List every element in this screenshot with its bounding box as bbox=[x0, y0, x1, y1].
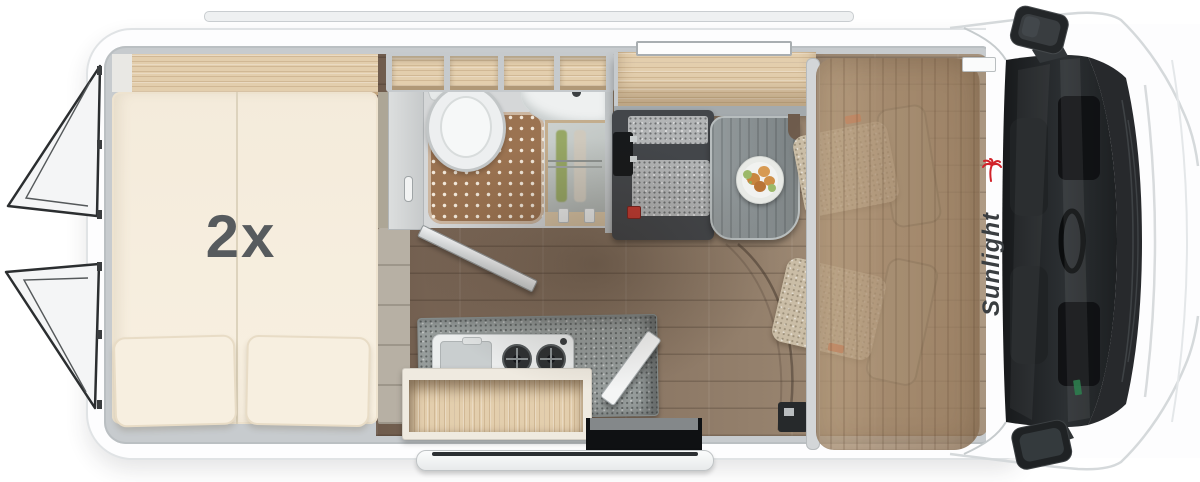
pillow-right bbox=[245, 335, 371, 428]
partition-seam bbox=[378, 92, 388, 228]
latch-detail bbox=[784, 408, 794, 416]
bed-side-cabinet bbox=[112, 54, 132, 92]
seatbelt-clip-1 bbox=[630, 136, 637, 142]
door-latch-mechanism bbox=[778, 402, 808, 432]
bench-seat-cushion bbox=[632, 160, 710, 216]
kitchen-shelf-cavity bbox=[409, 380, 583, 432]
wardrobe-sill bbox=[545, 212, 605, 226]
brand-logo-text: Sunlight bbox=[978, 184, 1006, 316]
side-window-strip bbox=[636, 41, 792, 56]
locker-cubby-1 bbox=[392, 56, 444, 90]
hook-left bbox=[558, 208, 569, 223]
bed-headboard-shelf bbox=[132, 54, 378, 95]
roof-rail bbox=[204, 11, 854, 22]
garnish-green bbox=[743, 170, 752, 179]
overhead-shelf-dinette bbox=[614, 52, 816, 108]
locker-cubby-4 bbox=[560, 56, 606, 90]
entry-step bbox=[590, 418, 698, 430]
rear-doors-open bbox=[0, 48, 120, 420]
toilet-bowl bbox=[440, 96, 492, 158]
meal-plate-icon bbox=[736, 156, 784, 204]
overcab-bed-overlay bbox=[816, 58, 980, 450]
wardrobe-rail-2 bbox=[548, 166, 602, 168]
sliding-door-rail bbox=[432, 452, 698, 456]
bench-backrest-cushion bbox=[628, 116, 708, 144]
seatbelt-buckle-red bbox=[627, 206, 641, 219]
wardrobe-rail bbox=[548, 160, 602, 162]
locker-cubby-3 bbox=[504, 56, 554, 90]
garnish-green bbox=[768, 184, 776, 192]
bed-quantity-label: 2x bbox=[186, 202, 296, 271]
bathroom-door-closed-panel bbox=[388, 90, 424, 230]
stove-knob bbox=[560, 338, 567, 345]
hook-right bbox=[584, 208, 595, 223]
kitchen-faucet bbox=[462, 337, 482, 345]
bathroom-door-handle bbox=[404, 176, 413, 202]
cab-roof-vent bbox=[962, 57, 996, 72]
pillow-left bbox=[113, 334, 237, 427]
floorplan-canvas: 2x bbox=[0, 0, 1200, 482]
seatbelt-clip-2 bbox=[630, 156, 637, 162]
palm-icon bbox=[980, 158, 1002, 182]
locker-cubby-2 bbox=[450, 56, 498, 90]
